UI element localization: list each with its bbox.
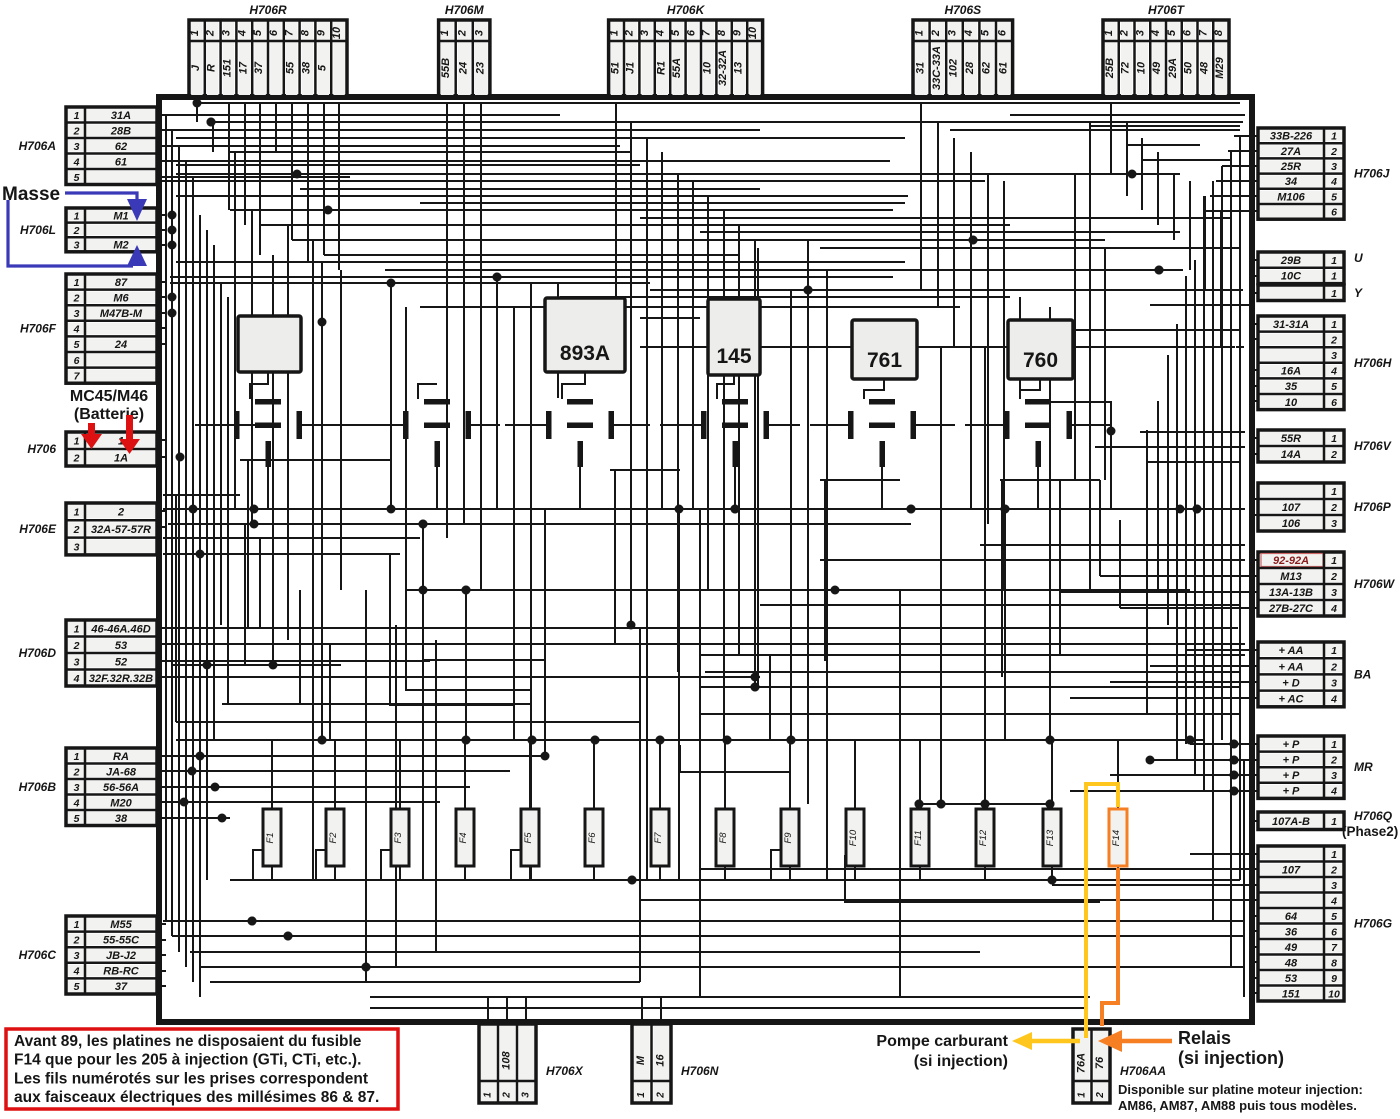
- svg-text:38: 38: [115, 813, 128, 825]
- svg-text:3: 3: [1331, 880, 1337, 892]
- svg-text:4: 4: [73, 156, 80, 168]
- svg-text:+ P: + P: [1283, 786, 1300, 798]
- svg-text:52: 52: [115, 656, 127, 668]
- svg-text:1: 1: [483, 1092, 494, 1098]
- svg-text:49: 49: [1284, 942, 1298, 954]
- svg-text:25R: 25R: [1280, 161, 1301, 173]
- svg-text:2: 2: [624, 30, 636, 37]
- svg-text:M2: M2: [113, 240, 128, 252]
- svg-text:1: 1: [1331, 645, 1337, 657]
- svg-text:3: 3: [1331, 161, 1337, 173]
- svg-text:H706Q: H706Q: [1354, 809, 1393, 823]
- svg-text:151: 151: [1282, 988, 1300, 1000]
- svg-text:RA: RA: [113, 751, 129, 763]
- svg-text:32F.32R.32B: 32F.32R.32B: [89, 673, 153, 685]
- svg-text:H706R: H706R: [249, 3, 287, 17]
- svg-text:6: 6: [74, 355, 80, 367]
- svg-text:MC45/M46: MC45/M46: [70, 388, 148, 405]
- svg-text:Les fils numérotés sur les pri: Les fils numérotés sur les prises corres…: [14, 1070, 368, 1087]
- svg-text:4: 4: [1330, 694, 1337, 706]
- svg-text:3: 3: [1331, 518, 1337, 530]
- svg-text:M106: M106: [1277, 191, 1305, 203]
- svg-text:F12: F12: [978, 829, 989, 846]
- svg-text:62: 62: [981, 62, 993, 74]
- svg-text:10: 10: [1328, 988, 1340, 1000]
- svg-text:16A: 16A: [1281, 366, 1301, 378]
- svg-text:2: 2: [1330, 864, 1337, 876]
- svg-text:F7: F7: [653, 832, 664, 844]
- svg-text:107A-B: 107A-B: [1272, 816, 1310, 828]
- svg-text:2: 2: [1330, 502, 1337, 514]
- svg-text:72: 72: [1120, 62, 1132, 74]
- svg-text:108: 108: [501, 1050, 513, 1069]
- svg-text:(Phase2): (Phase2): [1342, 824, 1398, 839]
- svg-text:5: 5: [252, 29, 264, 36]
- svg-text:106: 106: [1282, 518, 1301, 530]
- svg-text:50: 50: [1183, 61, 1195, 74]
- svg-text:1: 1: [74, 210, 80, 222]
- svg-text:3: 3: [521, 1092, 532, 1098]
- svg-text:(si injection): (si injection): [914, 1053, 1008, 1070]
- svg-text:1: 1: [74, 507, 80, 519]
- svg-text:8: 8: [716, 29, 728, 36]
- svg-text:Pompe carburant: Pompe carburant: [876, 1033, 1008, 1050]
- svg-text:U: U: [1354, 251, 1363, 265]
- svg-text:24: 24: [114, 339, 127, 351]
- svg-text:7: 7: [1197, 29, 1209, 36]
- svg-text:2: 2: [1095, 1092, 1106, 1099]
- svg-text:2: 2: [73, 766, 80, 778]
- svg-text:9: 9: [732, 29, 744, 36]
- svg-text:2: 2: [1330, 146, 1337, 158]
- svg-text:M13: M13: [1280, 571, 1301, 583]
- svg-text:10: 10: [702, 61, 714, 74]
- svg-text:F1: F1: [265, 832, 276, 843]
- svg-text:76: 76: [1094, 1056, 1106, 1069]
- svg-text:6: 6: [1331, 926, 1337, 938]
- svg-text:17: 17: [237, 61, 249, 74]
- svg-text:1: 1: [1331, 433, 1337, 445]
- svg-text:MR: MR: [1354, 760, 1373, 774]
- svg-text:F6: F6: [587, 832, 598, 844]
- svg-text:M: M: [635, 1055, 647, 1065]
- svg-text:2: 2: [655, 1092, 666, 1099]
- svg-text:1: 1: [74, 436, 80, 448]
- svg-text:(Batterie): (Batterie): [74, 406, 144, 423]
- svg-text:8: 8: [300, 29, 312, 36]
- svg-text:1A: 1A: [114, 453, 128, 465]
- svg-text:23: 23: [474, 62, 486, 75]
- svg-text:3: 3: [1331, 587, 1337, 599]
- svg-text:+ AC: + AC: [1279, 694, 1305, 706]
- svg-text:3: 3: [1331, 350, 1337, 362]
- svg-text:1: 1: [74, 623, 80, 635]
- svg-text:+ D: + D: [1282, 678, 1299, 690]
- svg-text:145: 145: [716, 345, 751, 368]
- svg-text:3: 3: [1134, 30, 1146, 36]
- svg-text:F14: F14: [1111, 830, 1122, 846]
- svg-text:1: 1: [1331, 486, 1337, 498]
- svg-text:893A: 893A: [560, 342, 610, 365]
- svg-text:H706K: H706K: [667, 3, 706, 17]
- svg-text:H706E: H706E: [19, 522, 57, 536]
- svg-text:37: 37: [253, 61, 265, 74]
- svg-text:1: 1: [439, 30, 451, 36]
- svg-text:14A: 14A: [1281, 449, 1301, 461]
- svg-text:+ AA: + AA: [1279, 661, 1304, 673]
- svg-text:1: 1: [1331, 319, 1337, 331]
- svg-text:4: 4: [236, 30, 248, 37]
- svg-text:M20: M20: [110, 797, 132, 809]
- svg-text:M6: M6: [113, 292, 129, 304]
- svg-text:6: 6: [1331, 397, 1337, 409]
- svg-text:13A-13B: 13A-13B: [1269, 587, 1313, 599]
- svg-text:+ AA: + AA: [1279, 645, 1304, 657]
- svg-text:31A: 31A: [111, 110, 131, 122]
- svg-text:H706N: H706N: [681, 1064, 719, 1078]
- svg-text:H706L: H706L: [20, 223, 56, 237]
- svg-text:31-31A: 31-31A: [1273, 319, 1309, 331]
- svg-text:107: 107: [1282, 864, 1301, 876]
- svg-text:5: 5: [74, 981, 80, 993]
- svg-text:F11: F11: [913, 830, 924, 846]
- svg-text:107: 107: [1282, 502, 1301, 514]
- svg-text:55-55C: 55-55C: [103, 934, 140, 946]
- svg-text:F4: F4: [458, 832, 469, 843]
- svg-text:1: 1: [1103, 30, 1115, 36]
- svg-text:5: 5: [316, 64, 328, 71]
- svg-text:10: 10: [1285, 397, 1298, 409]
- svg-text:4: 4: [1330, 603, 1337, 615]
- svg-text:6: 6: [685, 29, 697, 36]
- svg-text:2: 2: [117, 507, 124, 519]
- svg-text:55A: 55A: [671, 58, 683, 78]
- svg-text:4: 4: [73, 966, 80, 978]
- svg-text:Y: Y: [1354, 286, 1363, 300]
- svg-text:31: 31: [914, 62, 926, 74]
- svg-text:3: 3: [221, 30, 233, 36]
- svg-text:32-32A: 32-32A: [717, 50, 729, 86]
- svg-text:1: 1: [1331, 816, 1337, 828]
- svg-text:1: 1: [608, 30, 620, 36]
- svg-text:10C: 10C: [1281, 271, 1302, 283]
- svg-text:33B-226: 33B-226: [1270, 131, 1313, 143]
- svg-text:76A: 76A: [1075, 1053, 1087, 1073]
- svg-text:3: 3: [74, 308, 80, 320]
- svg-text:2: 2: [1330, 754, 1337, 766]
- svg-text:5: 5: [1331, 381, 1337, 393]
- svg-text:5: 5: [1166, 29, 1178, 36]
- svg-text:1: 1: [1331, 849, 1337, 861]
- svg-text:29A: 29A: [1167, 58, 1179, 79]
- svg-text:H706T: H706T: [1148, 3, 1186, 17]
- svg-text:25B: 25B: [1104, 58, 1116, 79]
- svg-text:2: 2: [73, 640, 80, 652]
- svg-text:M1: M1: [113, 210, 128, 222]
- svg-text:H706M: H706M: [445, 3, 485, 17]
- svg-text:2: 2: [1330, 571, 1337, 583]
- svg-text:3: 3: [947, 30, 959, 36]
- svg-text:24: 24: [457, 62, 469, 75]
- svg-text:1: 1: [1331, 288, 1337, 300]
- svg-text:3: 3: [473, 30, 485, 36]
- svg-text:151: 151: [222, 59, 234, 77]
- svg-text:2: 2: [456, 30, 468, 37]
- svg-text:48: 48: [1284, 957, 1298, 969]
- svg-text:6: 6: [268, 29, 280, 36]
- svg-text:1: 1: [913, 30, 925, 36]
- svg-text:H706W: H706W: [1354, 577, 1396, 591]
- svg-text:29B: 29B: [1280, 255, 1301, 267]
- svg-text:H706A: H706A: [19, 139, 56, 153]
- svg-text:3: 3: [74, 141, 80, 153]
- svg-text:3: 3: [74, 782, 80, 794]
- svg-text:2: 2: [73, 125, 80, 137]
- svg-text:4: 4: [655, 30, 667, 37]
- svg-text:5: 5: [670, 29, 682, 36]
- svg-text:61: 61: [115, 156, 127, 168]
- svg-text:28: 28: [964, 61, 976, 75]
- svg-text:F2: F2: [328, 832, 339, 844]
- svg-text:Relais: Relais: [1178, 1028, 1231, 1048]
- svg-text:4: 4: [963, 30, 975, 37]
- svg-text:H706: H706: [27, 442, 56, 456]
- svg-text:3: 3: [1331, 678, 1337, 690]
- svg-text:27A: 27A: [1280, 146, 1301, 158]
- svg-text:4: 4: [73, 673, 80, 685]
- svg-text:M29: M29: [1214, 56, 1226, 78]
- svg-text:13: 13: [733, 62, 745, 74]
- svg-text:1: 1: [74, 751, 80, 763]
- svg-text:5: 5: [74, 339, 80, 351]
- svg-text:6: 6: [1331, 207, 1337, 219]
- svg-text:9: 9: [1331, 973, 1337, 985]
- svg-text:2: 2: [73, 225, 80, 237]
- svg-text:F8: F8: [718, 832, 729, 844]
- svg-text:3: 3: [74, 656, 80, 668]
- svg-text:BA: BA: [1354, 667, 1371, 681]
- svg-text:F14 que pour les 205 à injecti: F14 que pour les 205 à injection (GTi, C…: [14, 1052, 361, 1069]
- svg-text:49: 49: [1151, 61, 1163, 75]
- svg-text:34: 34: [1285, 176, 1297, 188]
- svg-text:4: 4: [1330, 786, 1337, 798]
- svg-text:H706V: H706V: [1354, 439, 1392, 453]
- svg-text:M47B-M: M47B-M: [100, 308, 143, 320]
- svg-text:1: 1: [1331, 255, 1337, 267]
- svg-text:2: 2: [1330, 334, 1337, 346]
- svg-text:Avant 89, les platines ne disp: Avant 89, les platines ne disposaient du…: [14, 1033, 362, 1050]
- svg-text:7: 7: [701, 29, 713, 36]
- svg-text:55R: 55R: [1281, 433, 1301, 445]
- svg-text:F9: F9: [783, 832, 794, 844]
- svg-text:92-92A: 92-92A: [1273, 555, 1309, 567]
- svg-text:aux faisceaux électriques des: aux faisceaux électriques des millésimes…: [14, 1089, 379, 1106]
- svg-text:R1: R1: [656, 61, 668, 75]
- svg-text:9: 9: [315, 29, 327, 36]
- svg-text:36: 36: [1285, 926, 1298, 938]
- svg-text:102: 102: [948, 59, 960, 77]
- svg-text:1: 1: [1331, 131, 1337, 143]
- svg-text:1: 1: [74, 919, 80, 931]
- svg-text:H706F: H706F: [20, 322, 57, 336]
- svg-text:H706AA: H706AA: [1120, 1064, 1166, 1078]
- svg-text:46-46A.46D: 46-46A.46D: [90, 623, 150, 635]
- svg-text:28B: 28B: [110, 125, 131, 137]
- svg-text:RB-RC: RB-RC: [103, 966, 139, 978]
- svg-text:35: 35: [1285, 381, 1298, 393]
- svg-text:2: 2: [1330, 449, 1337, 461]
- svg-text:4: 4: [1330, 176, 1337, 188]
- svg-text:2: 2: [205, 30, 217, 37]
- svg-text:+ P: + P: [1283, 739, 1300, 751]
- svg-text:1: 1: [74, 277, 80, 289]
- svg-text:33C-33A: 33C-33A: [931, 46, 943, 90]
- svg-text:5: 5: [74, 172, 80, 184]
- svg-text:2: 2: [1119, 30, 1131, 37]
- svg-text:37: 37: [115, 981, 128, 993]
- svg-text:48: 48: [1198, 61, 1210, 75]
- svg-text:2: 2: [73, 524, 80, 536]
- svg-text:8: 8: [1331, 957, 1337, 969]
- svg-text:5: 5: [1331, 911, 1337, 923]
- svg-text:2: 2: [930, 30, 942, 37]
- svg-text:3: 3: [74, 541, 80, 553]
- svg-text:JA-68: JA-68: [106, 766, 137, 778]
- svg-text:87: 87: [115, 277, 128, 289]
- svg-text:1: 1: [1331, 739, 1337, 751]
- svg-text:Disponible sur platine moteur: Disponible sur platine moteur injection:: [1118, 1082, 1363, 1097]
- svg-text:4: 4: [73, 324, 80, 336]
- svg-text:1: 1: [1331, 271, 1337, 283]
- svg-text:64: 64: [1285, 911, 1297, 923]
- svg-text:6: 6: [996, 29, 1008, 36]
- svg-text:2: 2: [73, 453, 80, 465]
- svg-text:H706P: H706P: [1354, 500, 1392, 514]
- svg-text:4: 4: [73, 797, 80, 809]
- svg-text:761: 761: [867, 349, 902, 372]
- svg-text:10: 10: [331, 26, 343, 39]
- svg-text:J1: J1: [625, 62, 637, 74]
- svg-text:1: 1: [1331, 555, 1337, 567]
- svg-text:3: 3: [1331, 770, 1337, 782]
- svg-text:2: 2: [73, 934, 80, 946]
- svg-text:H706D: H706D: [19, 646, 57, 660]
- svg-text:51: 51: [609, 62, 621, 74]
- svg-text:M55: M55: [110, 919, 132, 931]
- svg-text:62: 62: [115, 141, 127, 153]
- svg-text:1: 1: [74, 110, 80, 122]
- svg-text:1: 1: [1076, 1092, 1087, 1098]
- svg-text:8: 8: [1213, 29, 1225, 36]
- svg-text:H706J: H706J: [1354, 167, 1390, 181]
- svg-text:JB-J2: JB-J2: [106, 950, 136, 962]
- svg-text:32A-57-57R: 32A-57-57R: [91, 524, 151, 536]
- svg-text:61: 61: [997, 62, 1009, 74]
- svg-text:5: 5: [74, 813, 80, 825]
- svg-text:H706G: H706G: [1354, 917, 1392, 931]
- svg-text:F5: F5: [523, 832, 534, 844]
- svg-text:53: 53: [115, 640, 127, 652]
- svg-text:+ P: + P: [1283, 754, 1300, 766]
- svg-text:1: 1: [636, 1092, 647, 1098]
- svg-text:3: 3: [74, 950, 80, 962]
- svg-text:3: 3: [639, 30, 651, 36]
- svg-text:F13: F13: [1045, 829, 1056, 846]
- svg-text:5: 5: [1331, 191, 1337, 203]
- svg-text:6: 6: [1182, 29, 1194, 36]
- svg-text:R: R: [206, 64, 218, 72]
- svg-text:2: 2: [502, 1092, 513, 1099]
- svg-text:F10: F10: [848, 829, 859, 846]
- svg-text:10: 10: [747, 26, 759, 39]
- svg-text:53: 53: [1285, 973, 1297, 985]
- svg-text:38: 38: [301, 61, 313, 74]
- svg-text:H706X: H706X: [546, 1064, 584, 1078]
- svg-text:4: 4: [1150, 30, 1162, 37]
- svg-text:7: 7: [284, 29, 296, 36]
- svg-text:(si injection): (si injection): [1178, 1048, 1284, 1068]
- svg-text:H706C: H706C: [19, 948, 57, 962]
- svg-text:H706B: H706B: [19, 780, 57, 794]
- svg-text:2: 2: [73, 292, 80, 304]
- svg-text:J: J: [190, 64, 202, 71]
- svg-text:1: 1: [189, 30, 201, 36]
- svg-text:H706S: H706S: [944, 3, 981, 17]
- svg-text:4: 4: [1330, 895, 1337, 907]
- svg-text:55: 55: [285, 61, 297, 74]
- svg-text:AM86, AM87, AM88 puis tous mod: AM86, AM87, AM88 puis tous modèles.: [1118, 1098, 1357, 1113]
- svg-text:H706H: H706H: [1354, 356, 1392, 370]
- svg-text:4: 4: [1330, 366, 1337, 378]
- svg-text:760: 760: [1023, 349, 1058, 372]
- svg-text:3: 3: [74, 240, 80, 252]
- svg-text:+ P: + P: [1283, 770, 1300, 782]
- svg-text:10: 10: [1135, 61, 1147, 74]
- svg-text:27B-27C: 27B-27C: [1268, 603, 1314, 615]
- svg-text:Masse: Masse: [2, 184, 60, 205]
- svg-text:5: 5: [980, 29, 992, 36]
- svg-text:56-56A: 56-56A: [103, 782, 139, 794]
- svg-text:16: 16: [654, 1054, 666, 1067]
- svg-text:F3: F3: [393, 832, 404, 844]
- svg-text:2: 2: [1330, 661, 1337, 673]
- svg-text:55B: 55B: [440, 58, 452, 78]
